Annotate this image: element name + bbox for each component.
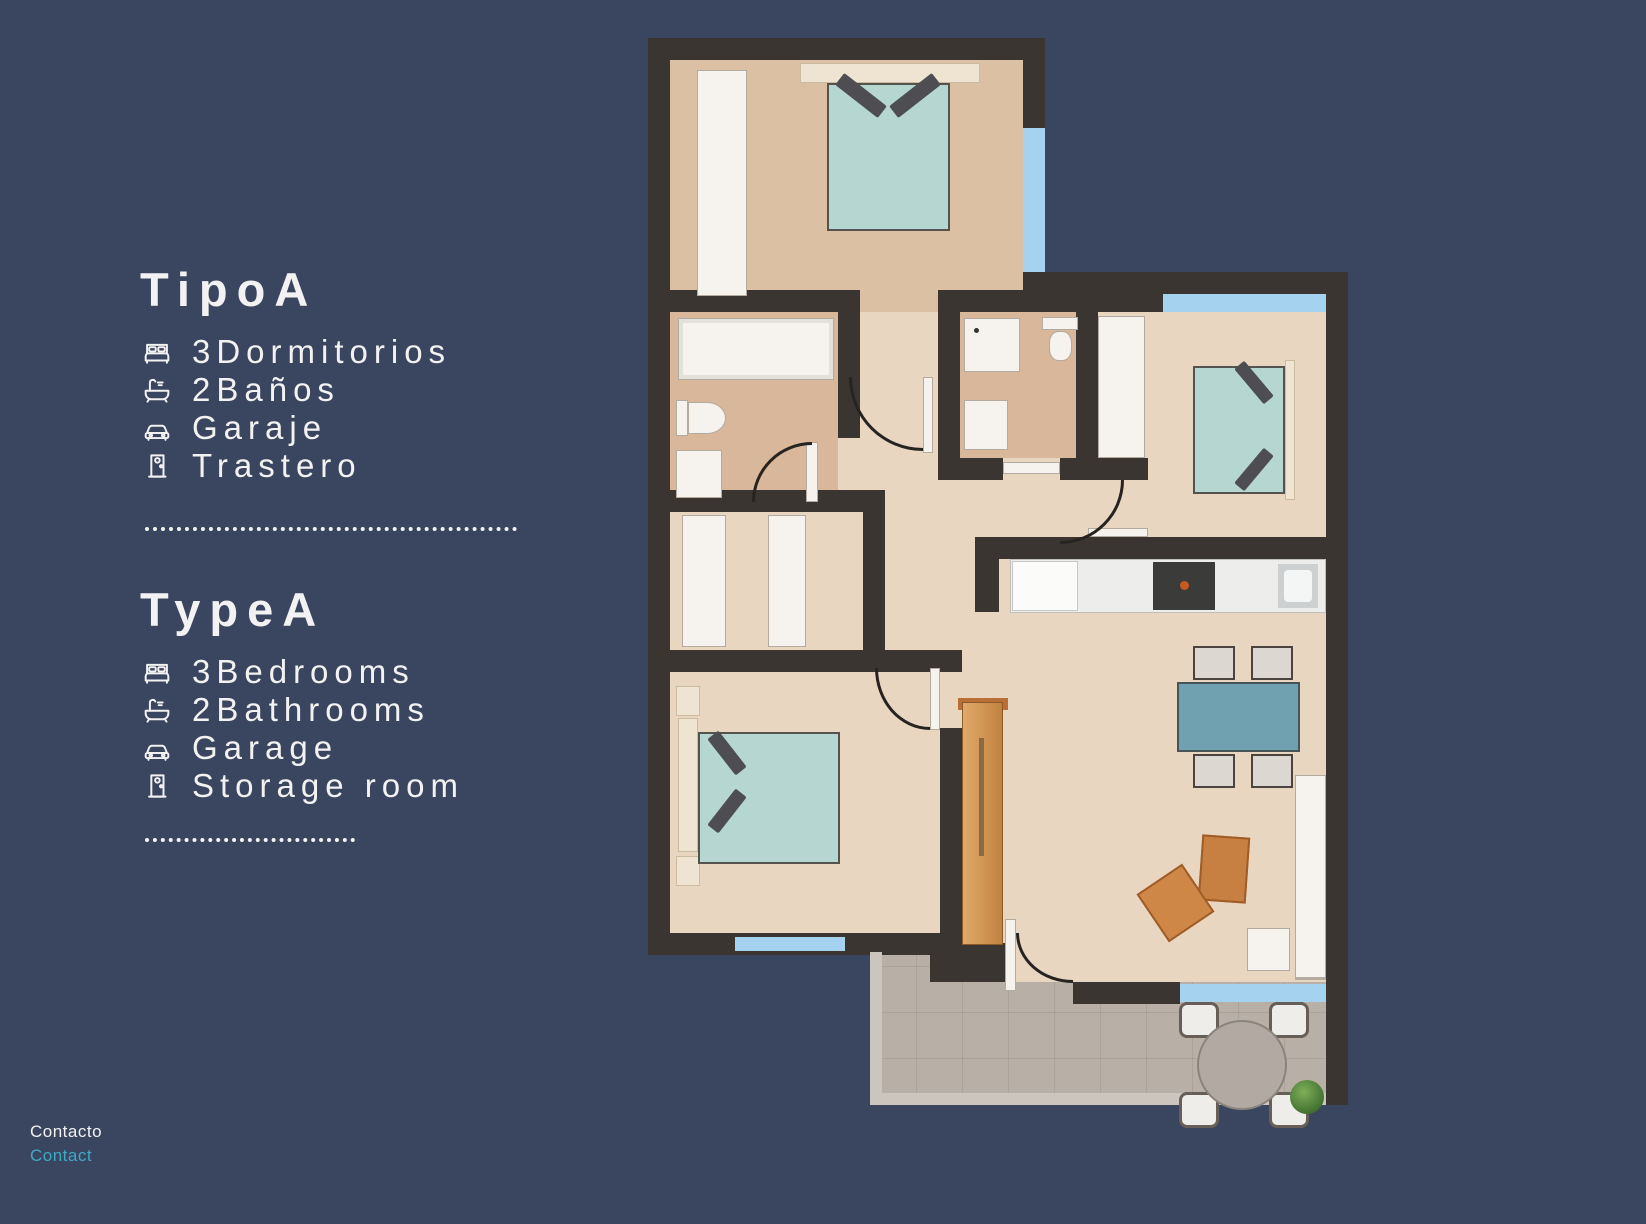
- wall: [938, 290, 960, 480]
- bed: [1193, 366, 1285, 494]
- bed-headboard: [678, 718, 698, 852]
- wall: [940, 728, 962, 943]
- cooktop-burner: [1180, 581, 1189, 590]
- window: [1163, 294, 1326, 312]
- plant: [1290, 1080, 1324, 1114]
- toilet: [1042, 317, 1078, 330]
- wall: [648, 290, 860, 312]
- terrace-table: [1197, 1020, 1287, 1110]
- feature-garage-es: Garaje: [140, 409, 451, 447]
- feature-label: Trastero: [192, 447, 362, 485]
- wardrobe: [697, 70, 747, 296]
- panel-es: TipoA 3Dormitorios 2Baños Garaje Traster…: [140, 262, 451, 485]
- wall: [938, 290, 1098, 312]
- feature-garage-en: Garage: [140, 729, 464, 767]
- toilet: [688, 402, 726, 434]
- feature-label: 3Bedrooms: [192, 653, 415, 691]
- bathtub: [678, 318, 834, 380]
- wall: [938, 458, 1003, 480]
- car-icon: [140, 731, 174, 765]
- feature-label: 2Baños: [192, 371, 340, 409]
- panel-en-title: TypeA: [140, 582, 464, 637]
- ottoman: [1247, 928, 1290, 971]
- terrace-chair: [1269, 1002, 1309, 1038]
- bed-icon: [140, 655, 174, 689]
- wall: [648, 38, 1045, 60]
- nightstand: [676, 686, 700, 716]
- footer-contact-en-link[interactable]: Contact: [30, 1146, 92, 1166]
- terrace-wall: [870, 952, 882, 1105]
- feature-bathrooms-es: 2Baños: [140, 371, 451, 409]
- feature-label: 2Bathrooms: [192, 691, 430, 729]
- wall: [863, 512, 885, 650]
- armchair: [1198, 834, 1250, 903]
- feature-label: Storage room: [192, 767, 464, 805]
- door-leaf: [1005, 919, 1016, 991]
- feature-label: 3Dormitorios: [192, 333, 451, 371]
- door-leaf: [923, 377, 933, 453]
- wall: [1073, 982, 1180, 1004]
- bed: [827, 83, 950, 231]
- kitchen-sink-basin: [1284, 570, 1312, 602]
- wall: [975, 537, 1326, 559]
- sink: [676, 450, 722, 498]
- feature-bathrooms-en: 2Bathrooms: [140, 691, 464, 729]
- footer-contact-es: Contacto: [30, 1122, 102, 1142]
- bed-icon: [140, 335, 174, 369]
- dining-table: [1177, 682, 1300, 752]
- sink: [964, 400, 1008, 450]
- wall: [930, 943, 1005, 982]
- sofa: [1295, 775, 1326, 980]
- panel-es-title: TipoA: [140, 262, 451, 317]
- feature-list-en: 3Bedrooms 2Bathrooms Garage Storage room: [140, 653, 464, 805]
- wall: [1023, 38, 1045, 128]
- wall: [1060, 458, 1148, 480]
- dining-chair: [1193, 646, 1235, 680]
- shower-head: [974, 328, 979, 333]
- feature-storage-es: Trastero: [140, 447, 451, 485]
- feature-bedrooms-es: 3Dormitorios: [140, 333, 451, 371]
- feature-bedrooms-en: 3Bedrooms: [140, 653, 464, 691]
- door-leaf: [930, 668, 940, 730]
- bath-icon: [140, 373, 174, 407]
- floor-plan: [648, 38, 1348, 1105]
- bath-icon: [140, 693, 174, 727]
- dining-chair: [1251, 754, 1293, 788]
- wardrobe: [1098, 316, 1145, 458]
- wall: [975, 537, 999, 612]
- feature-label: Garage: [192, 729, 338, 767]
- wall: [1076, 290, 1098, 480]
- toilet: [676, 400, 688, 436]
- wall: [1326, 272, 1348, 1105]
- feature-storage-en: Storage room: [140, 767, 464, 805]
- slide: TipoA 3Dormitorios 2Baños Garaje Traster…: [0, 0, 1646, 1224]
- dining-chair: [1193, 754, 1235, 788]
- dotted-separator: [145, 527, 517, 531]
- bed-headboard: [1285, 360, 1295, 500]
- bed-headboard: [800, 63, 980, 83]
- dining-chair: [1251, 646, 1293, 680]
- feature-list-es: 3Dormitorios 2Baños Garaje Trastero: [140, 333, 451, 485]
- panel-en: TypeA 3Bedrooms 2Bathrooms Garage Storag…: [140, 582, 464, 805]
- closet-door: [768, 515, 806, 647]
- window: [735, 937, 845, 951]
- dotted-separator: [145, 838, 355, 842]
- shower: [964, 318, 1020, 372]
- window: [1023, 128, 1045, 272]
- feature-label: Garaje: [192, 409, 327, 447]
- terrace-window: [1180, 984, 1326, 1002]
- door-icon: [140, 769, 174, 803]
- nightstand: [676, 856, 700, 886]
- wall: [838, 290, 860, 438]
- fridge: [1012, 561, 1078, 611]
- toilet: [1049, 331, 1072, 361]
- cabinet-handle: [979, 738, 984, 856]
- door-leaf: [1003, 462, 1060, 474]
- car-icon: [140, 411, 174, 445]
- door-icon: [140, 449, 174, 483]
- closet-door: [682, 515, 726, 647]
